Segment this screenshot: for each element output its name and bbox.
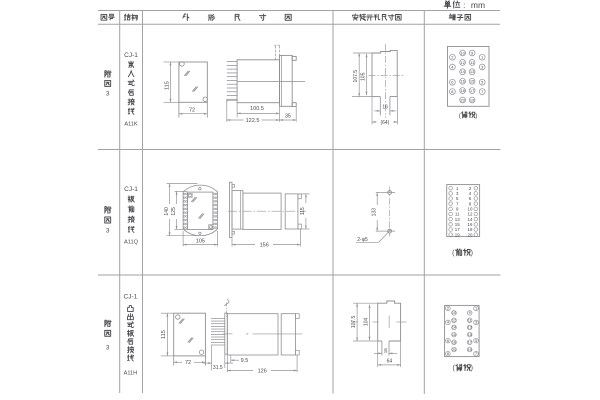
- svg-text::: :: [463, 1, 465, 10]
- svg-text:3: 3: [106, 227, 110, 234]
- svg-text:133: 133: [371, 208, 377, 217]
- svg-text:5: 5: [475, 339, 477, 343]
- svg-text:): ): [471, 365, 473, 372]
- svg-text:10: 10: [460, 50, 465, 55]
- svg-text:17: 17: [470, 88, 475, 93]
- svg-text:15: 15: [470, 79, 475, 84]
- svg-text:18: 18: [460, 88, 465, 93]
- svg-text:122.5: 122.5: [246, 118, 260, 124]
- svg-text:16: 16: [383, 348, 388, 354]
- svg-text:115: 115: [300, 207, 306, 215]
- svg-text:156: 156: [260, 242, 269, 248]
- svg-text:12: 12: [460, 60, 465, 65]
- svg-text:): ): [475, 112, 477, 119]
- svg-text:4: 4: [447, 321, 449, 325]
- svg-text:16: 16: [382, 105, 388, 111]
- svg-text:105: 105: [361, 72, 367, 81]
- svg-text:125: 125: [171, 207, 177, 216]
- svg-text:72: 72: [189, 108, 195, 114]
- svg-text:64: 64: [387, 359, 393, 365]
- svg-text:13: 13: [468, 326, 472, 330]
- svg-text:19: 19: [455, 232, 460, 237]
- svg-text:A11Q: A11Q: [124, 240, 139, 246]
- svg-text:20: 20: [460, 97, 465, 102]
- svg-text:105: 105: [196, 239, 205, 245]
- svg-text:7: 7: [475, 352, 477, 356]
- svg-text:16: 16: [452, 333, 456, 337]
- svg-text:107.5: 107.5: [353, 70, 359, 83]
- svg-text:2: 2: [447, 307, 449, 311]
- svg-text:9.5: 9.5: [241, 358, 249, 364]
- svg-text:13: 13: [470, 69, 475, 74]
- svg-text:mm: mm: [471, 0, 485, 10]
- svg-text:): ): [471, 250, 473, 257]
- svg-text:72: 72: [185, 360, 191, 366]
- svg-text:20: 20: [468, 232, 473, 237]
- svg-text:19: 19: [470, 97, 475, 102]
- svg-text:20: 20: [452, 348, 456, 352]
- svg-text:17: 17: [468, 341, 472, 345]
- svg-text:18: 18: [452, 341, 456, 345]
- svg-text:CJ-1: CJ-1: [124, 186, 138, 193]
- svg-text:31.5: 31.5: [213, 365, 223, 371]
- svg-text:14: 14: [460, 69, 465, 74]
- svg-text:CJ-1: CJ-1: [124, 294, 138, 301]
- svg-text:1: 1: [475, 307, 477, 311]
- svg-text:115: 115: [161, 330, 167, 339]
- svg-text:A11H: A11H: [124, 371, 138, 377]
- svg-text:(64): (64): [380, 120, 389, 126]
- svg-text:19: 19: [468, 348, 472, 352]
- svg-text:2-φ5: 2-φ5: [357, 237, 368, 243]
- svg-text:9: 9: [469, 311, 471, 315]
- svg-text:6: 6: [447, 339, 449, 343]
- svg-text:115: 115: [164, 81, 170, 90]
- svg-text:16: 16: [460, 79, 465, 84]
- svg-text:11: 11: [468, 319, 472, 323]
- svg-text:CJ-1: CJ-1: [124, 52, 138, 59]
- svg-text:3: 3: [475, 321, 477, 325]
- svg-text:100.5: 100.5: [250, 106, 264, 112]
- svg-text:126: 126: [258, 368, 267, 374]
- svg-text:8: 8: [447, 352, 449, 356]
- svg-text:107.5: 107.5: [351, 315, 357, 328]
- svg-text:104: 104: [364, 318, 370, 327]
- svg-text:35: 35: [285, 114, 291, 120]
- svg-text:3: 3: [106, 344, 110, 351]
- svg-text:14: 14: [452, 326, 456, 330]
- svg-text:3: 3: [106, 90, 110, 97]
- svg-text:140: 140: [164, 207, 170, 216]
- svg-text:12: 12: [452, 319, 456, 323]
- svg-text:15: 15: [468, 333, 472, 337]
- svg-text:10: 10: [452, 311, 456, 315]
- svg-text:A11K: A11K: [124, 122, 138, 128]
